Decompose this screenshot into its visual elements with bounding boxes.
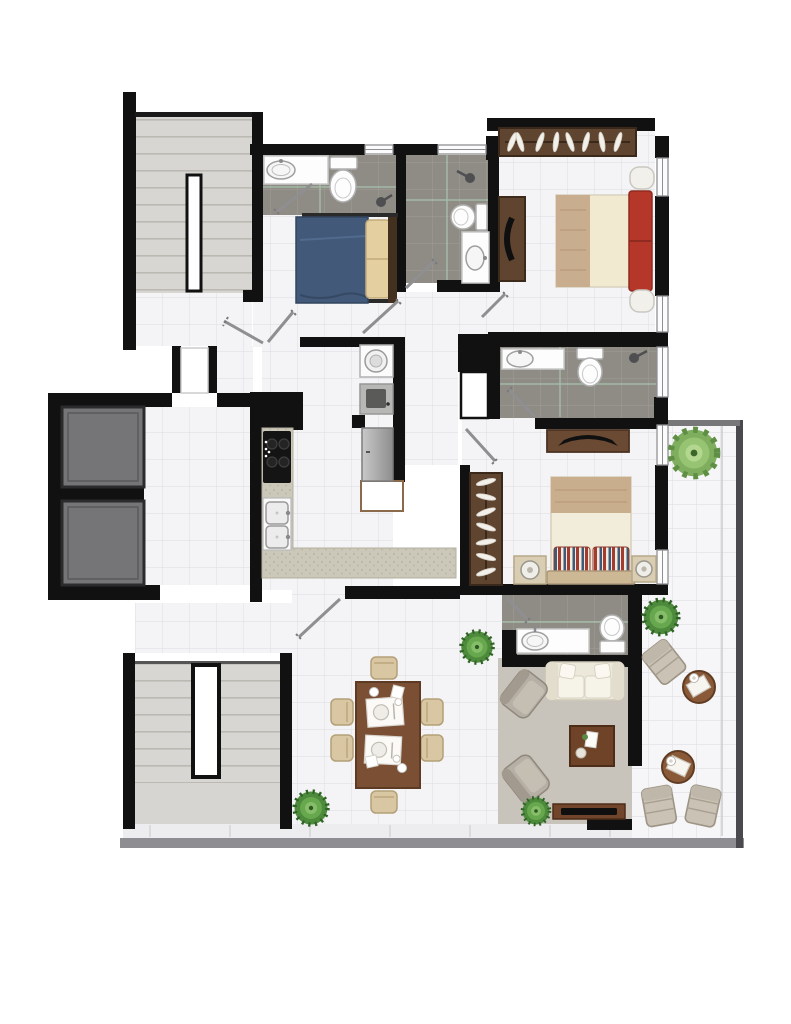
window <box>438 145 486 154</box>
wall <box>535 418 668 429</box>
sofa <box>546 662 624 700</box>
vanity-sink <box>517 626 589 653</box>
washing-machine <box>360 345 393 377</box>
toilet <box>330 157 357 202</box>
wall <box>48 393 172 407</box>
coffee-table <box>570 726 614 766</box>
terrace-strip <box>123 824 632 838</box>
vanity-sink <box>462 232 489 283</box>
double-sink <box>263 498 291 550</box>
wall <box>172 346 181 393</box>
footboard <box>547 571 635 584</box>
refrigerator <box>362 428 393 481</box>
tan-throw <box>556 195 590 287</box>
dining-chair <box>421 699 443 725</box>
sun-lounger <box>641 785 677 828</box>
wall <box>48 393 62 600</box>
vanity-sink <box>502 349 564 369</box>
wall <box>488 347 500 419</box>
duvet-fold <box>551 477 631 513</box>
toilet <box>451 204 487 230</box>
elevator-car-1 <box>62 407 144 487</box>
wardrobe <box>499 128 636 156</box>
window <box>657 425 668 465</box>
wall <box>123 653 135 829</box>
window <box>657 296 668 332</box>
plate <box>370 688 379 697</box>
wall <box>460 465 470 595</box>
wall <box>345 586 460 599</box>
potted-plant-large <box>671 430 718 477</box>
tv <box>561 808 617 815</box>
floor-entry <box>217 346 253 393</box>
tv-console <box>553 804 625 819</box>
wardrobe <box>470 473 502 585</box>
dining-chair <box>331 735 353 761</box>
laundry-tub <box>360 384 393 414</box>
napkin <box>365 755 378 768</box>
sofa-pillow <box>559 663 576 679</box>
napkin <box>391 685 405 699</box>
nightstand-with-lamp <box>632 556 656 582</box>
wall <box>250 392 303 430</box>
wall <box>250 144 365 155</box>
terrace-railing-bottom <box>120 838 744 848</box>
potted-plant <box>644 600 679 635</box>
potted-plant <box>461 631 493 663</box>
wall <box>62 487 144 501</box>
striped-pillow <box>593 547 629 573</box>
floor-hallway-lower <box>135 603 292 653</box>
dresser-tv <box>547 430 629 452</box>
nightstand-with-lamp <box>514 556 546 584</box>
window <box>657 347 668 397</box>
stair-void-lower <box>193 665 219 777</box>
wall <box>208 346 217 393</box>
vanity-sink <box>264 156 328 184</box>
toilet <box>577 348 603 386</box>
floor-hallway <box>144 407 250 585</box>
window <box>365 145 393 154</box>
wall <box>352 415 365 428</box>
wall <box>488 332 668 347</box>
wall <box>655 136 669 158</box>
laundry-nook <box>360 345 393 481</box>
dining-chair <box>371 791 397 813</box>
wall <box>458 334 490 372</box>
elevator-car-2 <box>62 501 144 585</box>
wall <box>406 144 438 155</box>
floor-plan-canvas: Apartment floor plan — top view <box>0 0 791 1024</box>
wall <box>135 112 253 117</box>
wall <box>48 585 160 600</box>
nightstand <box>630 167 654 189</box>
kitchen-cabinet-white <box>361 481 403 511</box>
wall <box>655 465 668 550</box>
wall <box>252 112 263 302</box>
floor-corridor-upper <box>136 293 252 346</box>
place-setting <box>366 697 404 727</box>
double-bed <box>547 477 635 584</box>
wall <box>243 290 263 302</box>
dining-chair <box>331 699 353 725</box>
toilet <box>600 615 625 653</box>
balcony-railing-right <box>736 420 743 848</box>
potted-plant <box>295 792 328 825</box>
kitchen-counter-bottom <box>262 548 456 578</box>
plate <box>398 764 407 773</box>
wall <box>655 196 669 296</box>
round-side-table <box>683 671 715 703</box>
wall <box>587 819 632 830</box>
nightstand <box>630 290 654 312</box>
round-side-table <box>662 751 694 783</box>
stair-landing-lower <box>135 783 280 829</box>
bedroom-1 <box>296 217 397 303</box>
wall <box>280 653 292 829</box>
wall <box>654 397 668 425</box>
stair-void-upper <box>187 175 201 291</box>
wall <box>393 342 405 482</box>
dining-chair <box>371 657 397 679</box>
floor-corridor-bedroom2 <box>405 347 458 465</box>
service-shaft <box>461 372 488 418</box>
wall <box>628 593 642 766</box>
wall <box>396 144 406 292</box>
dining-chair <box>421 735 443 761</box>
sofa-pillow <box>594 663 611 679</box>
bed-headboard <box>388 217 397 303</box>
single-bed-blue-duvet <box>296 217 368 303</box>
dresser <box>499 197 525 281</box>
striped-pillow <box>554 547 590 573</box>
potted-plant <box>523 798 550 825</box>
wall <box>123 92 136 350</box>
entry-niche <box>181 348 208 393</box>
double-bed <box>556 191 652 291</box>
window <box>657 550 668 584</box>
window <box>657 158 668 196</box>
cooktop <box>263 431 291 483</box>
